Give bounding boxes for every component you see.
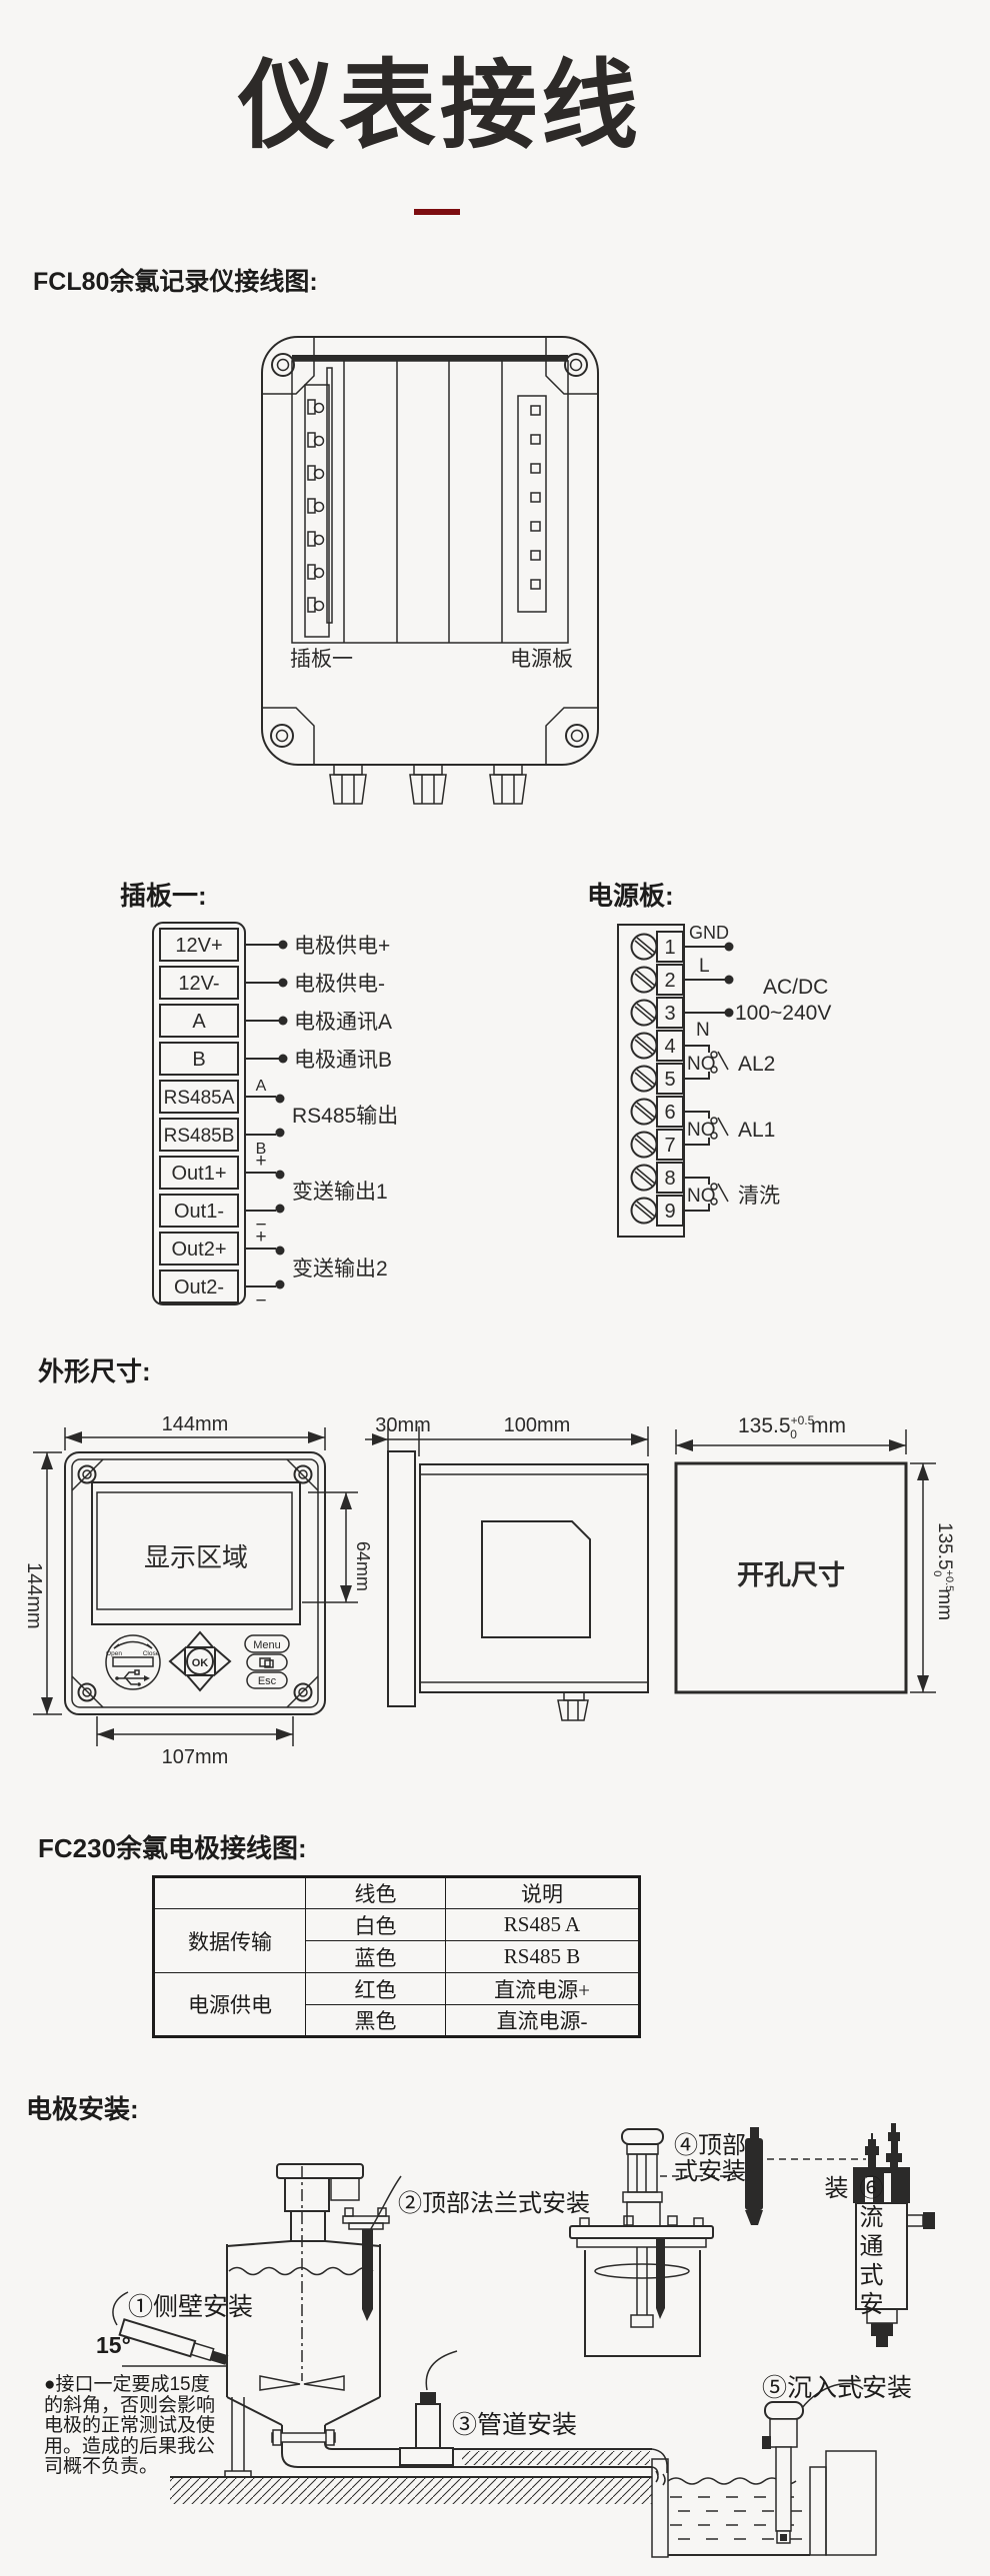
wire-mark: +	[255, 1227, 266, 1248]
dim-unit: mm	[811, 1414, 846, 1437]
terminal-label: Out2+	[171, 1239, 226, 1261]
no-contact-label: NO	[687, 1120, 716, 1141]
terminal-label: RS485A	[164, 1088, 235, 1109]
power-terminal-strip	[518, 396, 546, 612]
usb-port-icon: Open Close	[106, 1635, 160, 1689]
acdc-label: AC/DC	[763, 976, 828, 999]
terminal-label: RS485B	[164, 1126, 235, 1147]
heading-dimensions: 外形尺寸:	[38, 1351, 151, 1388]
right-arrow-icon	[215, 1648, 230, 1674]
pipe-electrode-body	[416, 2404, 440, 2448]
dim-tol-dn: 0	[790, 1427, 797, 1441]
wire-mark: −	[255, 1290, 266, 1311]
power-terminal-number: 9	[664, 1201, 675, 1223]
left-arrow-icon	[170, 1648, 185, 1674]
terminal-label: 12V+	[175, 935, 222, 957]
pin-note: 电极通讯A	[294, 1011, 392, 1034]
label-flange-install: ②顶部法兰式安装	[398, 2183, 590, 2218]
terminal-label: Out2-	[174, 1277, 224, 1298]
sidewall-electrode	[120, 2319, 230, 2366]
device-wiring-diagram: 插板一 电源板	[250, 330, 610, 815]
wire-color: 红色	[306, 1973, 446, 2005]
terminal-label: A	[192, 1011, 206, 1033]
power-wiring: GND L N AC/DC 100~240V NO AL2 NO AL1 NO …	[684, 923, 831, 1211]
ok-button: OK	[192, 1657, 209, 1669]
heading-fc230: FC230余氯电极接线图:	[38, 1828, 307, 1865]
flange-electrode	[343, 2208, 389, 2321]
side-view: 30mm 100mm	[365, 1414, 648, 1720]
terminal-label: Out1-	[174, 1201, 224, 1223]
dim-front-height: 144mm	[23, 1452, 62, 1714]
page-title: 仪表接线	[0, 26, 880, 167]
wash-label: 清洗	[738, 1185, 780, 1208]
group-note: 变送输出2	[292, 1258, 388, 1281]
table-row: 电源供电 红色 直流电源+	[154, 1973, 640, 2005]
menu-button: Menu	[253, 1639, 281, 1651]
wire-color: 白色	[306, 1909, 446, 1941]
terminal-label: B	[192, 1049, 205, 1071]
dim-text: 64mm	[353, 1541, 373, 1591]
svg-text:135.5+0.50mm: 135.5+0.50mm	[738, 1413, 846, 1441]
manual-page: 仪表接线 FCL80余氯记录仪接线图:	[0, 0, 990, 2576]
pin-note: 电极供电+	[294, 935, 390, 958]
group-note: RS485输出	[292, 1105, 398, 1128]
wire-color: 黑色	[306, 2005, 446, 2037]
label-top-install-2: 式安装	[674, 2151, 746, 2186]
svg-text:135.5+0.50mm: 135.5+0.50mm	[931, 1522, 955, 1620]
dim-text: 144mm	[162, 1413, 229, 1435]
al1-label: AL1	[738, 1119, 775, 1142]
dim-text: 144mm	[23, 1562, 45, 1629]
board1-terminal-strip	[305, 368, 332, 637]
down-arrow-icon	[187, 1675, 213, 1690]
pin-note: 电极供电-	[294, 973, 385, 996]
label-sidewall-install: ①侧壁安装	[128, 2287, 253, 2323]
pin-note: 电极通讯B	[294, 1049, 392, 1072]
stirrer-blade	[260, 2376, 300, 2390]
dim-text: 107mm	[162, 1746, 229, 1768]
header-blank	[154, 1877, 306, 1909]
terminal-label: 12V-	[178, 973, 219, 995]
heading-fcl80-wiring: FCL80余氯记录仪接线图:	[33, 262, 318, 298]
no-contact-label: NO	[687, 1186, 716, 1207]
gnd-label: GND	[689, 923, 729, 943]
wire-color: 蓝色	[306, 1941, 446, 1973]
label-immersion-install: ⑤沉入式安装	[762, 2368, 912, 2404]
wire-mark: A	[256, 1078, 267, 1095]
power-terminal-number: 4	[664, 1036, 675, 1058]
angle-15-label: 15°	[96, 2332, 131, 2359]
wire-desc: 直流电源+	[446, 1973, 640, 2005]
hole-size-label: 开孔尺寸	[737, 1560, 845, 1590]
usb-close-label: Close	[143, 1650, 160, 1657]
wire-desc: RS485 A	[446, 1909, 640, 1941]
power-terminal-number: 3	[664, 1003, 675, 1025]
power-terminal-number: 6	[664, 1102, 675, 1124]
power-terminal-number: 7	[664, 1135, 675, 1157]
power-terminal-number: 2	[664, 970, 675, 992]
device-power-label: 电源板	[510, 648, 573, 671]
heading-power-board: 电源板:	[587, 876, 674, 913]
dim-text: 100mm	[504, 1414, 571, 1436]
heading-board1: 插板一:	[120, 876, 207, 913]
table-header-row: 线色 说明	[154, 1877, 640, 1909]
dim-tol-dn: 0	[931, 1570, 943, 1576]
wire-desc: RS485 B	[446, 1941, 640, 1973]
power-terminal-number: 1	[664, 937, 675, 959]
dim-front-bottom: 107mm	[97, 1716, 293, 1768]
esc-button: Esc	[258, 1675, 277, 1687]
title-underline	[414, 209, 460, 215]
al2-label: AL2	[738, 1053, 775, 1076]
function-buttons: Menu Esc	[245, 1635, 289, 1688]
device-enclosure: 插板一 电源板	[262, 337, 598, 804]
pipe-electrode-cap	[420, 2392, 436, 2404]
group-note: 变送输出1	[292, 1181, 388, 1204]
line-label: L	[699, 956, 710, 977]
up-arrow-icon	[187, 1632, 213, 1647]
dim-text: 135.5	[738, 1414, 791, 1437]
table-row: 数据传输 白色 RS485 A	[154, 1909, 640, 1941]
dim-hole-width: 135.5+0.50mm	[676, 1413, 906, 1454]
board1-wiring-diagram: 12V+ 12V- A B RS485A RS485B Out1+ Out1- …	[40, 920, 600, 1319]
voltage-label: 100~240V	[735, 1002, 831, 1025]
pipe-electrode-cable	[426, 2351, 457, 2390]
water-line	[229, 2268, 373, 2275]
dim-text: 30mm	[375, 1414, 431, 1436]
terminal-label: Out1+	[171, 1163, 226, 1185]
power-terminal-number: 5	[664, 1069, 675, 1091]
header-description: 说明	[446, 1877, 640, 1909]
group-power-supply: 电源供电	[154, 1973, 306, 2037]
dimension-drawings: 显示区域 Open Close OK	[10, 1394, 980, 1779]
usb-open-label: Open	[106, 1650, 122, 1657]
cable-glands	[330, 765, 526, 804]
stirrer-blade	[304, 2376, 344, 2390]
dim-screen-height: 64mm	[302, 1492, 373, 1602]
board1-wires: 电极供电+ 电极供电- 电极通讯A 电极通讯B A B RS485输出 + − …	[245, 935, 398, 1311]
wire-desc: 直流电源-	[446, 2005, 640, 2037]
power-terminals: 1 2 3 4 5 6 7 8 9	[632, 932, 684, 1226]
group-data-transfer: 数据传输	[154, 1909, 306, 1973]
display-area-label: 显示区域	[144, 1543, 248, 1572]
board1-terminals: 12V+ 12V- A B RS485A RS485B Out1+ Out1- …	[160, 929, 238, 1302]
dim-hole-height: 135.5+0.50mm	[910, 1463, 955, 1692]
fc230-wiring-table: 线色 说明 数据传输 白色 RS485 A 蓝色 RS485 B 电源供电 红色…	[152, 1875, 641, 2038]
dim-unit: mm	[934, 1588, 955, 1620]
wire-mark: +	[255, 1151, 266, 1172]
side-gland	[558, 1692, 588, 1720]
label-flowthrough-install: ⑥流通式安装	[816, 2175, 886, 2335]
neutral-label: N	[696, 1020, 710, 1041]
dpad: OK	[170, 1632, 230, 1690]
dim-front-width: 144mm	[65, 1413, 325, 1450]
dim-text: 135.5	[934, 1522, 955, 1570]
header-wire-color: 线色	[306, 1877, 446, 1909]
power-terminal-number: 8	[664, 1168, 675, 1190]
label-pipe-install: ③管道安装	[452, 2405, 577, 2441]
hole-size-view: 开孔尺寸 135.5+0.50mm 135.5+0.50mm	[676, 1413, 955, 1692]
device-board1-label: 插板一	[290, 648, 353, 671]
installation-warning-note: ●接口一定要成15度 的斜角，否则会影响 电极的正常测试及使 用。造成的后果我公…	[44, 2375, 239, 2478]
power-board-diagram: 1 2 3 4 5 6 7 8 9 GND L N AC/DC 100~240V…	[585, 920, 990, 1280]
no-contact-label: NO	[687, 1054, 716, 1075]
front-view: 显示区域 Open Close OK	[23, 1413, 373, 1768]
